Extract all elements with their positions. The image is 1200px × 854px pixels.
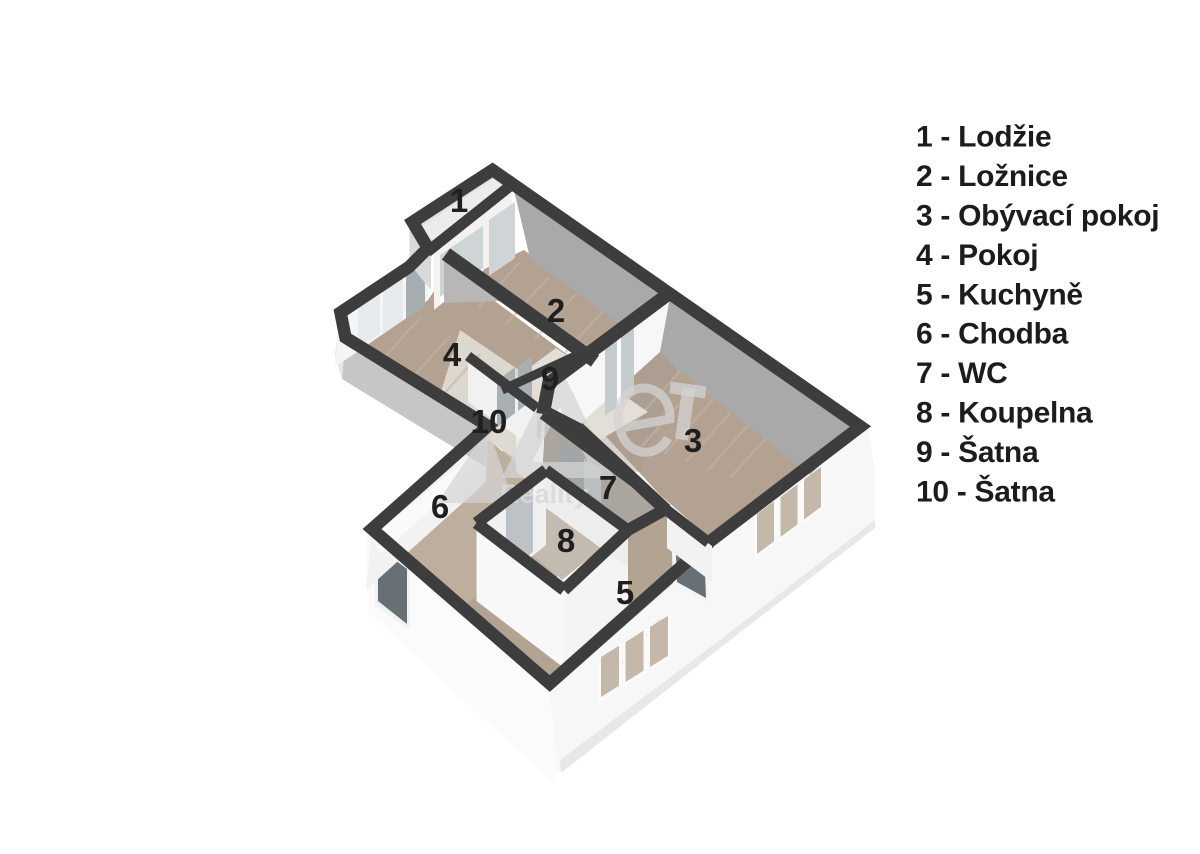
svg-text:10 - Šatna: 10 - Šatna: [916, 474, 1055, 508]
svg-text:9 - Šatna: 9 - Šatna: [916, 435, 1039, 469]
svg-text:1 - Lodžie: 1 - Lodžie: [916, 121, 1051, 154]
svg-text:7 - WC: 7 - WC: [916, 357, 1008, 390]
svg-text:10: 10: [471, 403, 508, 440]
svg-text:3: 3: [684, 422, 702, 459]
svg-text:2: 2: [547, 292, 565, 329]
svg-text:5 - Kuchyně: 5 - Kuchyně: [916, 278, 1083, 311]
svg-text:4: 4: [443, 336, 462, 373]
svg-text:8: 8: [557, 522, 575, 559]
svg-text:8 - Koupelna: 8 - Koupelna: [916, 397, 1093, 430]
svg-text:5: 5: [616, 574, 634, 611]
svg-text:7: 7: [599, 469, 617, 506]
svg-text:2 - Ložnice: 2 - Ložnice: [916, 160, 1068, 193]
svg-text:9: 9: [541, 360, 559, 397]
svg-text:6: 6: [431, 488, 449, 525]
svg-text:1: 1: [450, 182, 468, 219]
svg-text:3 - Obývací pokoj: 3 - Obývací pokoj: [916, 200, 1159, 233]
svg-text:4 - Pokoj: 4 - Pokoj: [916, 239, 1038, 272]
svg-text:6 - Chodba: 6 - Chodba: [916, 318, 1069, 351]
